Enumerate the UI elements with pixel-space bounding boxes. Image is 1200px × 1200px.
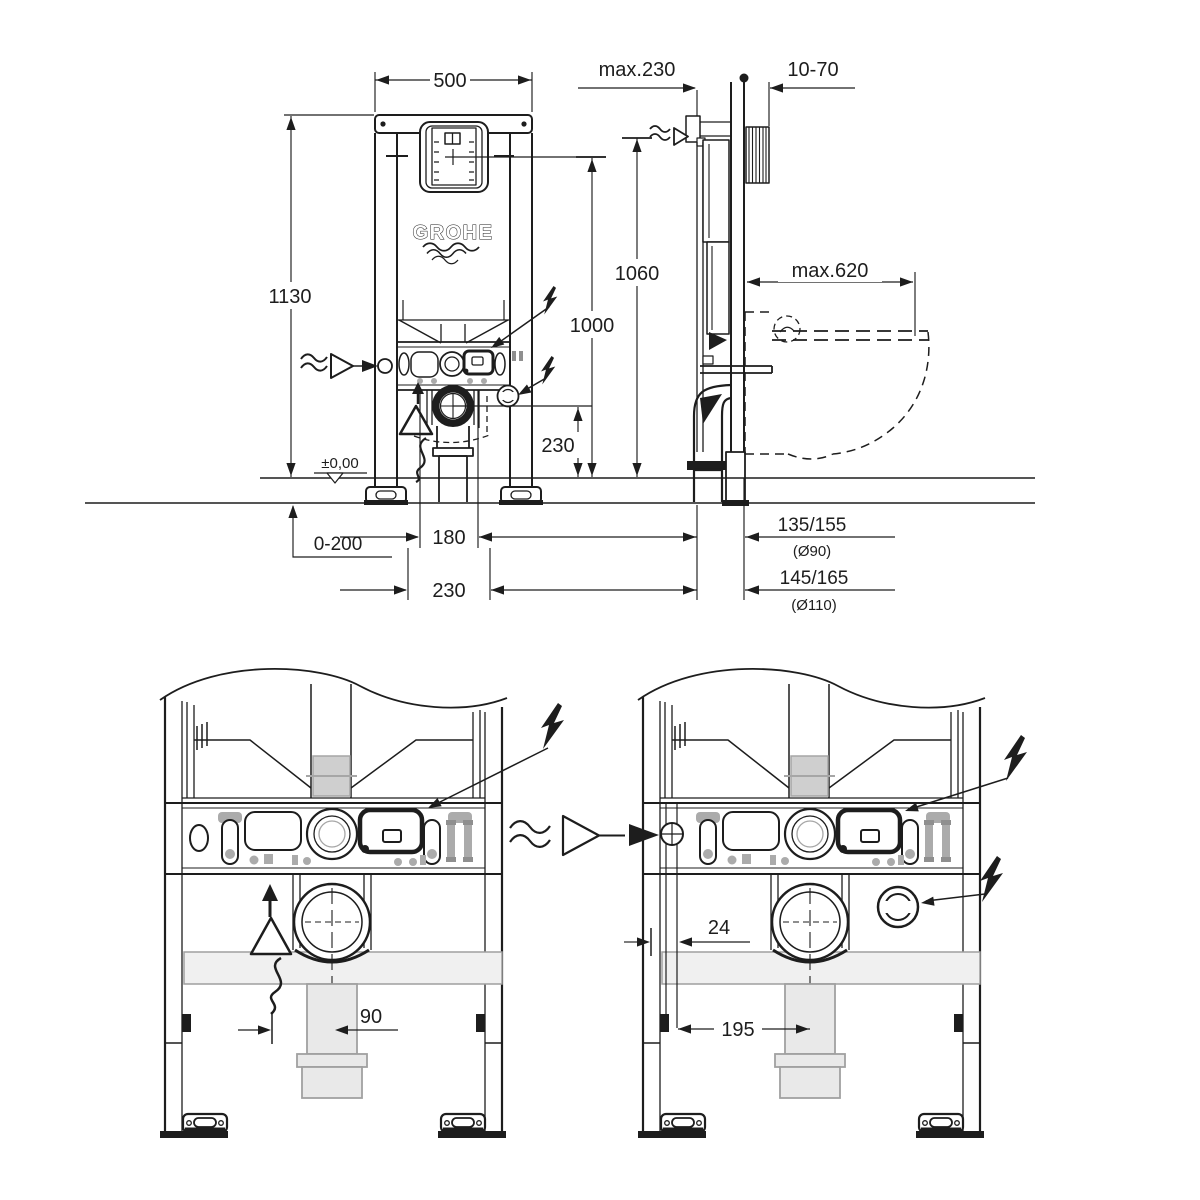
floor-level-label: ±0,00 xyxy=(321,455,358,472)
dim-frame-height: 1130 xyxy=(268,286,311,308)
dim-fixing-spacing-outer: 230 xyxy=(432,580,465,602)
dim-supply-edge-offset: 24 xyxy=(708,917,730,939)
dim-bowl-projection: max.620 xyxy=(792,260,869,282)
dim-wall-distance: 10-70 xyxy=(787,59,838,81)
power-socket xyxy=(878,887,918,927)
electrical-connection-box xyxy=(464,351,493,374)
dim-drain-offset-d110: 145/165 xyxy=(780,568,849,589)
brand-text: GROHE xyxy=(413,222,494,244)
technical-drawing-page: GROHE xyxy=(0,0,1200,1200)
dim-service-opening-height: 1000 xyxy=(570,315,615,337)
dim-frame-width: 500 xyxy=(433,70,466,92)
dim-drain-lateral-offset: 90 xyxy=(360,1006,382,1028)
background xyxy=(0,0,1200,1200)
dim-drain-pipe-d90: (Ø90) xyxy=(793,543,831,560)
dim-drain-pipe-d110: (Ø110) xyxy=(791,597,837,614)
reference-dot xyxy=(740,74,749,83)
water-inlet-port xyxy=(378,359,392,373)
dim-drain-center-height: 230 xyxy=(541,435,574,457)
dim-fixing-spacing-inner: 180 xyxy=(432,527,465,549)
dim-drain-offset-d90: 135/155 xyxy=(778,515,847,536)
grohe-installation-frame-drawing: GROHE xyxy=(0,0,1200,1200)
dim-actuation-center-height: 1060 xyxy=(615,263,660,285)
dim-supply-to-drain-spacing: 195 xyxy=(721,1019,754,1041)
dim-frame-depth: max.230 xyxy=(599,59,676,81)
